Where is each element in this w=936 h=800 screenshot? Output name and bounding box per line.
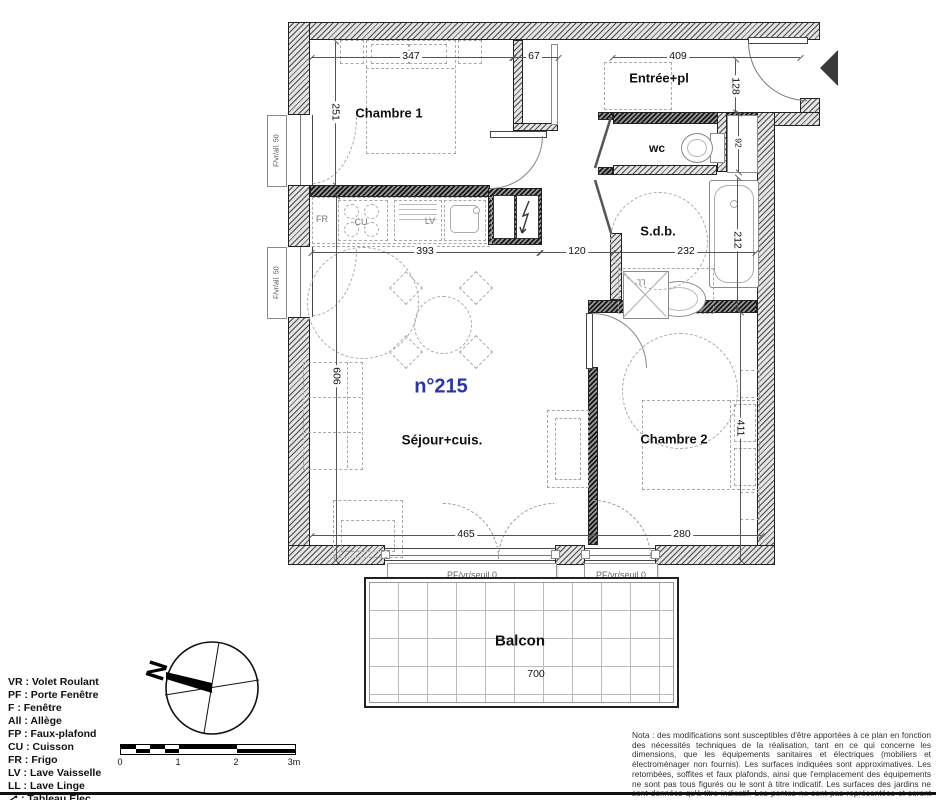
floor-plan-sheet: F/vr/all. 50 F/vr/all. 50 PF/vr/seuil 0 … [0, 0, 936, 800]
plan-overlay [0, 0, 936, 800]
plan-note: Nota : des modifications sont susceptibl… [632, 731, 931, 800]
scale-tick-label: 3m [288, 757, 301, 767]
legend-item-lv: LV : Lave Vaisselle [8, 767, 101, 780]
legend-item-all: All : Allège [8, 715, 101, 728]
legend-item-cu: CU : Cuisson [8, 741, 101, 754]
scale-tick-label: 0 [117, 757, 122, 767]
scale-segment [150, 745, 165, 749]
scale-segment [237, 749, 295, 753]
legend-item-vr: VR : Volet Roulant [8, 676, 101, 689]
compass-graphic: N [145, 630, 280, 755]
scale-segment [165, 749, 180, 753]
north-compass: N [145, 630, 280, 755]
legend-item-f: F : Fenêtre [8, 702, 101, 715]
sdb-door-leaf [595, 180, 611, 233]
legend: VR : Volet Roulant PF : Porte Fenêtre F … [8, 676, 101, 800]
scale-segment [179, 745, 237, 749]
legend-item-fp: FP : Faux-plafond [8, 728, 101, 741]
entrance-arrow-icon [820, 50, 838, 86]
electrical-panel-icon [520, 201, 529, 233]
sheet-border-line [0, 792, 936, 795]
scale-segment [136, 749, 151, 753]
wc-door-leaf [595, 117, 611, 168]
legend-item-pf: PF : Porte Fenêtre [8, 689, 101, 702]
scale-segment [121, 745, 136, 749]
legend-item-fr: FR : Frigo [8, 754, 101, 767]
scale-tick-label: 1 [175, 757, 180, 767]
scale-bar [120, 744, 296, 755]
scale-tick-label: 2 [233, 757, 238, 767]
